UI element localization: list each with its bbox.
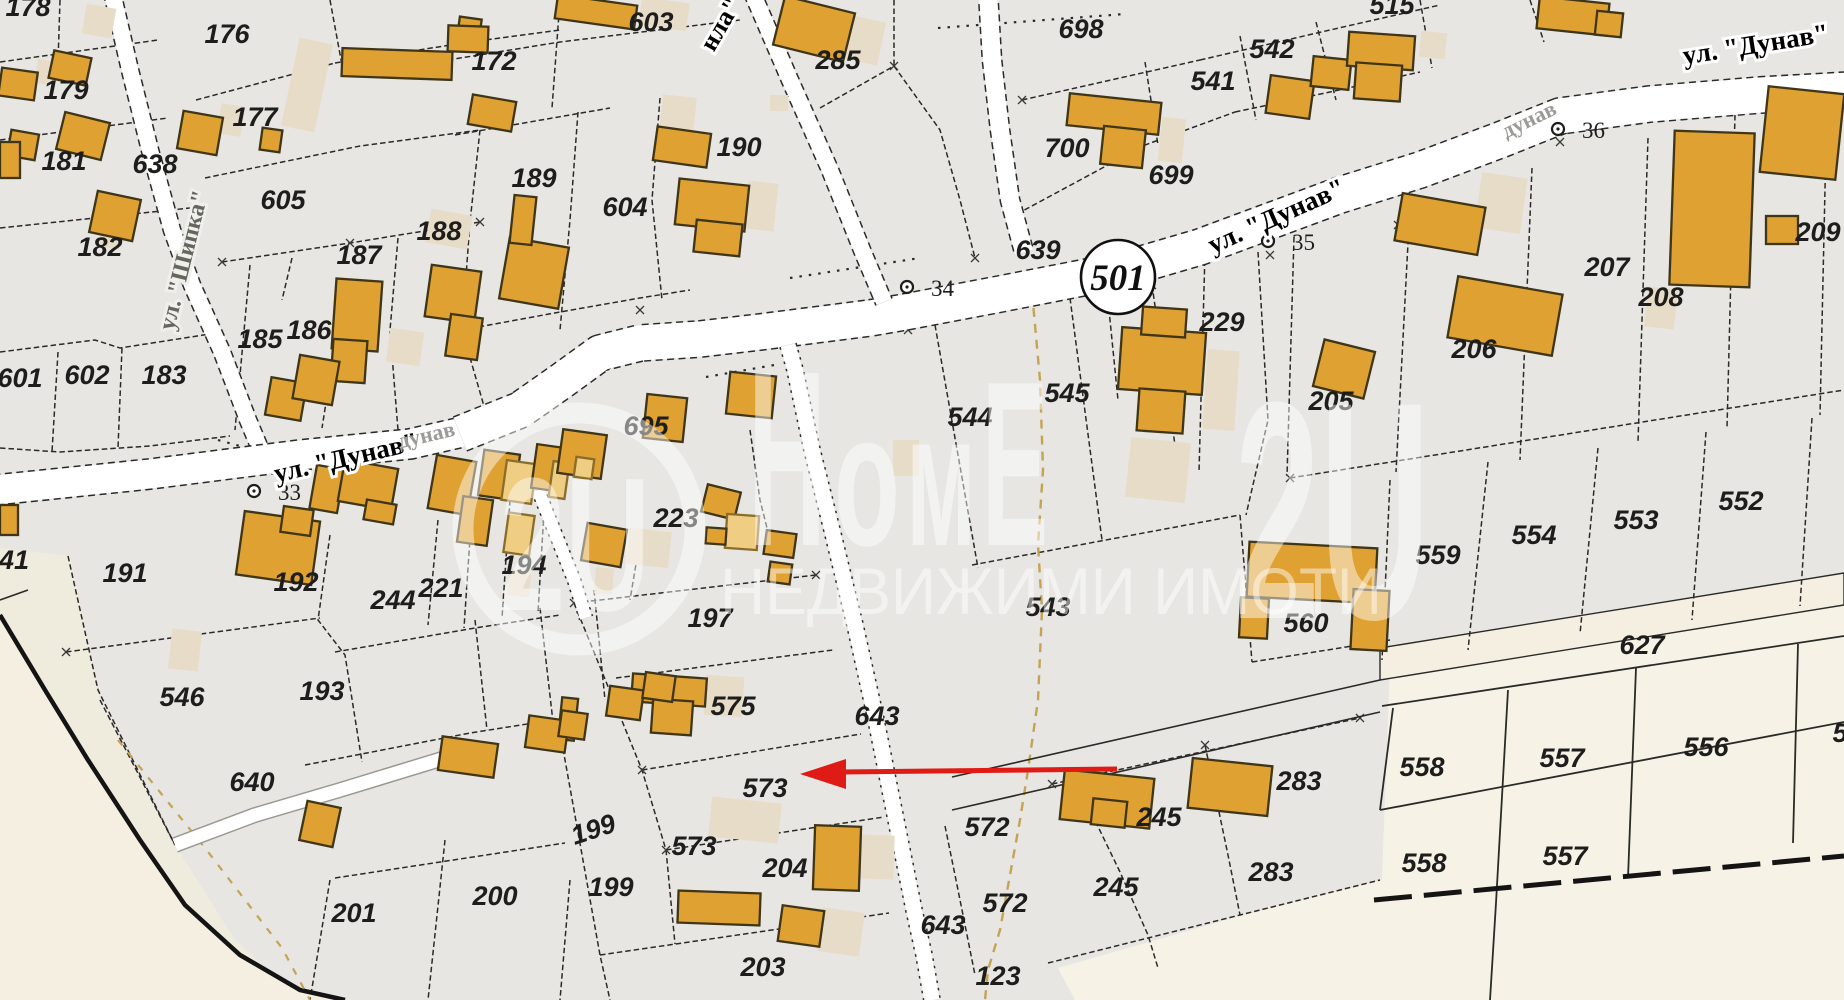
svg-text:178: 178 xyxy=(5,0,50,22)
svg-text:605: 605 xyxy=(260,185,306,215)
svg-text:2U: 2U xyxy=(1235,337,1430,684)
svg-text:221: 221 xyxy=(417,573,463,603)
svg-text:188: 188 xyxy=(416,216,461,246)
svg-text:558: 558 xyxy=(1399,752,1444,782)
svg-text:190: 190 xyxy=(716,132,761,162)
svg-text:556: 556 xyxy=(1683,732,1729,762)
svg-text:176: 176 xyxy=(204,19,250,49)
svg-text:602: 602 xyxy=(64,360,109,390)
svg-text:245: 245 xyxy=(1135,802,1182,832)
svg-text:283: 283 xyxy=(1275,766,1321,796)
svg-text:638: 638 xyxy=(132,149,177,179)
svg-text:546: 546 xyxy=(159,682,205,712)
svg-text:179: 179 xyxy=(43,75,88,105)
svg-text:554: 554 xyxy=(1511,520,1556,550)
svg-text:285: 285 xyxy=(814,45,861,75)
svg-text:206: 206 xyxy=(1450,334,1497,364)
svg-text:35: 35 xyxy=(1292,230,1315,255)
svg-text:573: 573 xyxy=(742,773,787,803)
svg-text:200: 200 xyxy=(471,881,517,911)
svg-text:699: 699 xyxy=(1148,160,1193,190)
svg-text:604: 604 xyxy=(602,192,647,222)
svg-text:5: 5 xyxy=(1832,718,1844,748)
svg-text:557: 557 xyxy=(1542,841,1589,871)
svg-text:501: 501 xyxy=(1090,258,1146,299)
svg-text:203: 203 xyxy=(739,952,785,982)
svg-text:181: 181 xyxy=(41,146,86,176)
svg-text:36: 36 xyxy=(1582,118,1605,143)
svg-text:34: 34 xyxy=(931,276,955,301)
svg-text:207: 207 xyxy=(1583,252,1631,282)
svg-text:182: 182 xyxy=(77,232,122,262)
svg-text:515: 515 xyxy=(1369,0,1415,20)
svg-text:557: 557 xyxy=(1539,743,1586,773)
svg-text:185: 185 xyxy=(237,324,283,354)
svg-text:573: 573 xyxy=(671,831,716,861)
svg-text:199: 199 xyxy=(588,872,633,902)
svg-text:201: 201 xyxy=(330,898,376,928)
svg-text:192: 192 xyxy=(273,567,318,597)
svg-text:186: 186 xyxy=(286,315,332,345)
svg-text:700: 700 xyxy=(1044,133,1089,163)
svg-text:187: 187 xyxy=(336,240,383,270)
svg-text:627: 627 xyxy=(1619,630,1666,660)
svg-text:640: 640 xyxy=(229,767,274,797)
svg-text:189: 189 xyxy=(511,163,556,193)
svg-text:204: 204 xyxy=(761,853,807,883)
svg-text:542: 542 xyxy=(1249,34,1294,64)
svg-text:639: 639 xyxy=(1015,235,1060,265)
svg-text:245: 245 xyxy=(1092,872,1139,902)
svg-text:183: 183 xyxy=(141,360,186,390)
svg-text:552: 552 xyxy=(1718,486,1763,516)
svg-text:545: 545 xyxy=(1044,378,1090,408)
svg-text:229: 229 xyxy=(1198,307,1244,337)
svg-text:572: 572 xyxy=(982,888,1027,918)
svg-text:541: 541 xyxy=(1190,66,1235,96)
svg-text:572: 572 xyxy=(964,812,1009,842)
svg-text:643: 643 xyxy=(920,910,965,940)
svg-text:553: 553 xyxy=(1613,505,1658,535)
svg-text:177: 177 xyxy=(232,102,279,132)
svg-text:208: 208 xyxy=(1637,282,1683,312)
svg-text:123: 123 xyxy=(975,961,1020,991)
svg-text:209: 209 xyxy=(1794,217,1840,247)
svg-text:172: 172 xyxy=(471,46,516,76)
svg-text:НЕДВИЖИМИ ИМОТИ: НЕДВИЖИМИ ИМОТИ xyxy=(720,554,1382,628)
svg-text:193: 193 xyxy=(299,676,344,706)
svg-text:244: 244 xyxy=(369,585,415,615)
svg-text:283: 283 xyxy=(1247,857,1293,887)
svg-text:575: 575 xyxy=(710,691,756,721)
svg-text:643: 643 xyxy=(854,701,899,731)
svg-text:601: 601 xyxy=(0,363,43,393)
svg-text:698: 698 xyxy=(1058,14,1103,44)
svg-text:41: 41 xyxy=(0,545,29,575)
svg-text:2U: 2U xyxy=(500,439,650,651)
svg-text:191: 191 xyxy=(102,558,147,588)
svg-text:558: 558 xyxy=(1401,848,1446,878)
svg-text:603: 603 xyxy=(628,7,673,37)
